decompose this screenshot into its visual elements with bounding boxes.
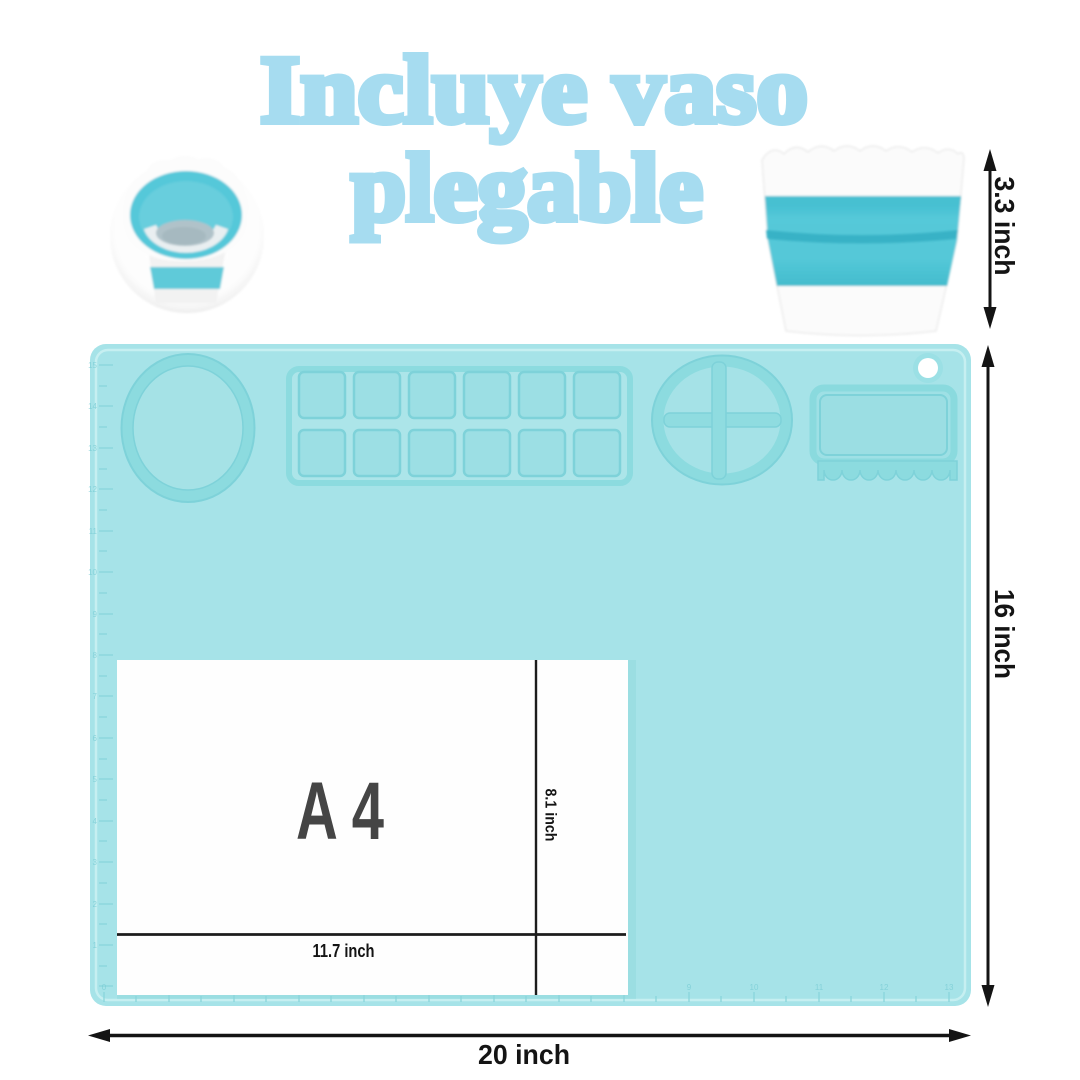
svg-text:12: 12 [88,485,97,494]
svg-text:A 4: A 4 [296,766,384,857]
svg-text:13: 13 [945,983,954,992]
svg-text:7: 7 [93,692,98,701]
svg-text:5: 5 [93,775,98,784]
svg-text:9: 9 [93,610,98,619]
svg-text:11.7 inch: 11.7 inch [313,941,375,961]
svg-text:8: 8 [93,651,98,660]
svg-text:11: 11 [89,527,98,536]
svg-text:10: 10 [750,983,759,992]
svg-text:13: 13 [88,444,97,453]
svg-text:8.1 inch: 8.1 inch [542,789,559,842]
svg-text:16 inch: 16 inch [989,589,1020,679]
svg-text:0: 0 [102,983,107,992]
svg-text:20 inch: 20 inch [478,1039,570,1070]
svg-text:9: 9 [687,983,692,992]
svg-text:Incluye vaso: Incluye vaso [260,36,808,143]
svg-text:4: 4 [93,817,98,826]
svg-text:6: 6 [93,734,98,743]
svg-text:3: 3 [93,858,98,867]
svg-text:10: 10 [88,568,97,577]
svg-text:plegable: plegable [351,134,703,241]
svg-text:15: 15 [88,361,97,370]
svg-text:11: 11 [815,983,824,992]
svg-text:3.3 inch: 3.3 inch [989,177,1020,276]
svg-text:12: 12 [880,983,889,992]
svg-text:2: 2 [93,900,98,909]
svg-text:1: 1 [93,941,98,950]
svg-text:14: 14 [88,402,97,411]
